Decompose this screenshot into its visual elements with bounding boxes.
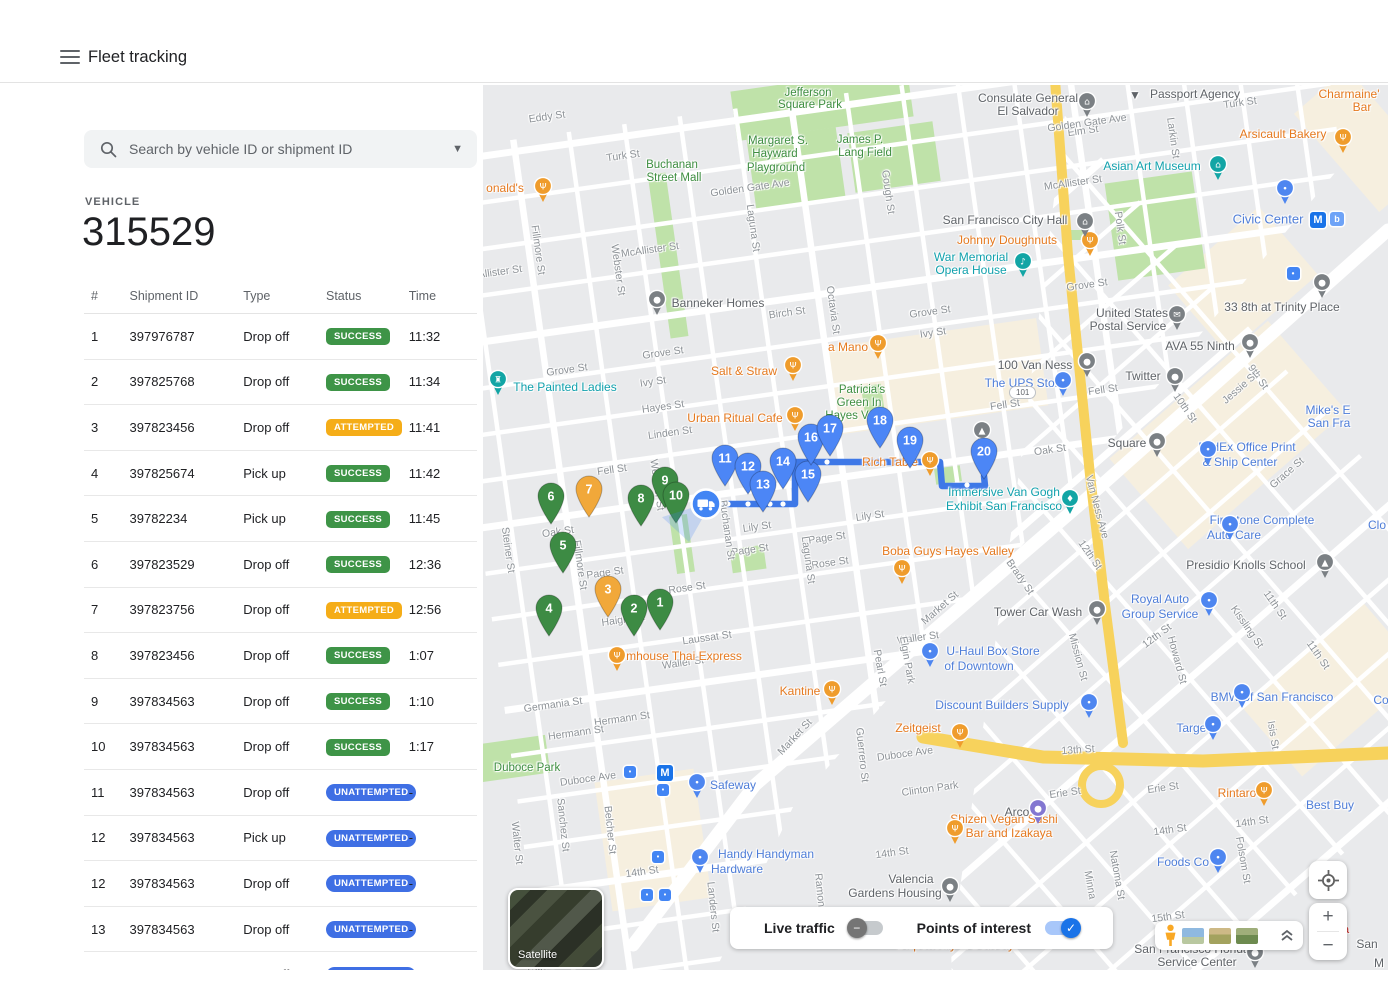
pegman-icon[interactable]	[1164, 924, 1177, 947]
status-badge: UNATTEMPTED	[326, 784, 416, 801]
van-gogh-pin[interactable]: ♦	[1060, 488, 1080, 520]
cell: 11	[84, 769, 130, 815]
status-badge: SUCCESS	[326, 556, 390, 573]
table-row[interactable]: 7397823756Drop offATTEMPTED12:56	[84, 587, 477, 633]
svg-text:•: •	[1206, 596, 1211, 606]
map-label: San Fra	[1308, 416, 1351, 430]
svg-text:•: •	[1227, 520, 1232, 530]
tower-car-wash-pin[interactable]: ●	[1087, 599, 1107, 631]
svg-text:17: 17	[823, 422, 837, 436]
fedex-pin[interactable]: •	[1198, 439, 1218, 471]
svg-text:2: 2	[631, 602, 638, 616]
svg-text:Ψ: Ψ	[791, 411, 798, 421]
svg-text:3: 3	[605, 583, 612, 597]
cell: Pick up	[243, 450, 326, 496]
table-row[interactable]: 11397834563Drop offUNATTEMPTED-	[84, 769, 477, 815]
map-label: Hayward	[752, 148, 797, 160]
map-label: AVA 55 Ninth	[1165, 339, 1235, 353]
map-label: Boba Guys Hayes Valley	[882, 544, 1014, 558]
table-row[interactable]: 13397834563Drop offUNATTEMPTED-	[84, 906, 477, 952]
arco-pin[interactable]: ●	[1028, 798, 1048, 830]
column-header: Shipment ID	[130, 283, 244, 314]
cell: -	[409, 952, 477, 970]
cell: 397834563	[130, 861, 244, 907]
cell: 11:42	[409, 450, 477, 496]
handy-handyman-pin[interactable]: •	[690, 847, 710, 879]
map-label: Postal Service	[1090, 319, 1167, 333]
table-row[interactable]: 2397825768Drop offSUCCESS11:34	[84, 359, 477, 405]
status-cell: SUCCESS	[326, 496, 409, 542]
svg-text:Ψ: Ψ	[828, 685, 835, 695]
metro-m-icon[interactable]: M	[657, 765, 673, 781]
map-label: San Francisco City Hall	[943, 213, 1068, 227]
cell: Drop off	[243, 359, 326, 405]
cell: 12:36	[409, 541, 477, 587]
search-box[interactable]: ▼	[84, 130, 477, 168]
transit-icon[interactable]: •	[659, 889, 671, 901]
svg-text:●: ●	[1153, 437, 1161, 447]
table-row[interactable]: 4397825674Pick upSUCCESS11:42	[84, 450, 477, 496]
table-row[interactable]: 14397834563Drop offUNATTEMPTED-	[84, 952, 477, 970]
map-label: M	[1374, 956, 1384, 970]
map-label: Foods Co	[1157, 855, 1209, 869]
map-label: Handy Handyman	[718, 847, 814, 861]
fleet-tracking-app: Fleet tracking ▼ VEHICLE 315529 #Shipmen…	[0, 0, 1388, 1006]
svg-text:●: ●	[1093, 605, 1101, 615]
cell: 39782234	[130, 496, 244, 542]
cell: 10	[84, 724, 130, 770]
page-title: Fleet tracking	[88, 48, 187, 67]
map-label: Arco	[1005, 805, 1030, 819]
map-label: Banneker Homes	[672, 296, 765, 310]
table-row[interactable]: 12397834563Pick upUNATTEMPTED-	[84, 815, 477, 861]
satellite-toggle[interactable]: Satellite	[508, 888, 604, 969]
stop-pin-3[interactable]: 3	[593, 575, 623, 624]
map-label: Hardware	[711, 862, 763, 876]
svg-text:●: ●	[1034, 804, 1042, 814]
transit-icon[interactable]: •	[657, 784, 669, 796]
map-label: Passport Agency	[1150, 87, 1240, 101]
svg-text:Ψ: Ψ	[956, 728, 963, 738]
zoom-in-button[interactable]: +	[1309, 903, 1347, 931]
map-label: Exhibit San Francisco	[946, 499, 1062, 513]
map-label: Charmaine'	[1319, 87, 1380, 101]
imagery-thumbnail[interactable]	[1209, 928, 1231, 944]
table-row[interactable]: 6397823529Drop offSUCCESS12:36	[84, 541, 477, 587]
map-label: The Painted Ladies	[513, 380, 616, 394]
uhaul-pin[interactable]: •	[920, 641, 940, 673]
svg-text:19: 19	[903, 434, 917, 448]
toggle-knob-minus-icon: −	[847, 918, 867, 938]
cell: 11:41	[409, 405, 477, 451]
status-badge: UNATTEMPTED	[326, 967, 416, 970]
cell: 13	[84, 906, 130, 952]
square-pin[interactable]: ●	[1147, 431, 1167, 463]
svg-text:Ψ: Ψ	[874, 339, 881, 349]
svg-text:▲: ▲	[979, 426, 986, 436]
transit-icon[interactable]: •	[624, 766, 636, 778]
map-label: Patricia's	[839, 384, 885, 396]
header-divider	[0, 82, 1388, 83]
opera-house-pin[interactable]: ♪	[1013, 251, 1033, 283]
table-row[interactable]: 1397976787Drop offSUCCESS11:32	[84, 314, 477, 360]
map-label: War Memorial	[934, 250, 1008, 264]
map-label: James P.	[837, 134, 883, 146]
cell: Drop off	[243, 952, 326, 970]
cell: 12	[84, 861, 130, 907]
table-row[interactable]: 10397834563Drop offSUCCESS1:17	[84, 724, 477, 770]
column-header: Status	[326, 283, 409, 314]
map-label: Jefferson	[784, 87, 831, 99]
map-label: Safeway	[710, 778, 756, 792]
map-label: Valencia	[888, 872, 933, 886]
cell: Drop off	[243, 906, 326, 952]
svg-text:Ψ: Ψ	[1339, 133, 1346, 143]
svg-text:⌂: ⌂	[1215, 160, 1221, 170]
live-traffic-toggle[interactable]: −	[849, 921, 883, 935]
map-label: Duboce Park	[494, 762, 560, 774]
cell: 397834563	[130, 678, 244, 724]
column-header: Type	[243, 283, 326, 314]
table-row[interactable]: 3397823456Drop offATTEMPTED11:41	[84, 405, 477, 451]
status-cell: SUCCESS	[326, 359, 409, 405]
status-badge: SUCCESS	[326, 693, 390, 710]
cell: 397825768	[130, 359, 244, 405]
map-label: Playground	[747, 162, 805, 174]
svg-text:Ψ: Ψ	[951, 824, 958, 834]
cell: 5	[84, 496, 130, 542]
live-traffic-label: Live traffic	[764, 920, 835, 936]
svg-text:•: •	[1210, 720, 1215, 730]
status-cell: SUCCESS	[326, 541, 409, 587]
status-cell: UNATTEMPTED	[326, 861, 409, 907]
status-badge: ATTEMPTED	[326, 602, 402, 619]
foods-co-pin[interactable]: •	[1208, 847, 1228, 879]
zoom-out-button[interactable]: −	[1309, 932, 1347, 960]
status-badge: UNATTEMPTED	[326, 875, 416, 892]
map-label: Service Center	[1157, 955, 1236, 969]
twitter-pin[interactable]: ●	[1165, 366, 1185, 398]
map-label: Lang Field	[838, 147, 892, 159]
svg-text:•: •	[1205, 445, 1210, 455]
svg-text:•: •	[1060, 376, 1065, 386]
status-cell: SUCCESS	[326, 678, 409, 724]
map-label: Twitter	[1125, 369, 1160, 383]
ups-store-pin[interactable]: •	[1053, 370, 1073, 402]
svg-text:Ψ: Ψ	[789, 361, 796, 371]
cell: 397834563	[130, 769, 244, 815]
table-header-row: #Shipment IDTypeStatusTime	[84, 283, 477, 314]
app-header: Fleet tracking	[0, 0, 1388, 82]
royal-auto-pin[interactable]: •	[1199, 590, 1219, 622]
shipment-table: #Shipment IDTypeStatusTime 1397976787Dro…	[84, 283, 477, 970]
stop-pin-4[interactable]: 4	[534, 594, 564, 643]
status-cell: UNATTEMPTED	[326, 769, 409, 815]
stop-pin-20[interactable]: 20	[969, 437, 999, 486]
painted-ladies-pin[interactable]: ♜	[488, 369, 508, 401]
map-label: San	[1356, 937, 1377, 951]
column-header: #	[84, 283, 130, 314]
target-pin[interactable]: •	[1203, 714, 1223, 746]
valencia-gardens-pin[interactable]: ●	[940, 876, 960, 908]
farmhouse-pin[interactable]: Ψ	[607, 645, 627, 677]
status-cell: UNATTEMPTED	[326, 906, 409, 952]
map-label: Zeitgeist	[895, 721, 940, 735]
svg-text:14: 14	[776, 455, 790, 469]
svg-text:⌂: ⌂	[1082, 217, 1088, 227]
cell: 397823756	[130, 587, 244, 633]
svg-text:7: 7	[586, 483, 593, 497]
cell: 397825674	[130, 450, 244, 496]
cell: 4	[84, 450, 130, 496]
status-cell: UNATTEMPTED	[326, 815, 409, 861]
map-label: of Downtown	[944, 659, 1013, 673]
cell: 7	[84, 587, 130, 633]
toggle-knob-check-icon: ✓	[1061, 918, 1081, 938]
svg-text:10: 10	[669, 489, 683, 503]
100-van-ness-pin[interactable]: ●	[1077, 351, 1097, 383]
map-label: Asian Art Museum	[1103, 159, 1200, 173]
cell: -	[409, 861, 477, 907]
cell: -	[409, 815, 477, 861]
map-label: Gardens Housing	[848, 886, 941, 900]
cell: 12:56	[409, 587, 477, 633]
map-label: Discount Builders Supply	[935, 698, 1068, 712]
vehicle-label: VEHICLE	[85, 196, 140, 208]
cell: 11:32	[409, 314, 477, 360]
cell: 11:45	[409, 496, 477, 542]
stop-pin-19[interactable]: 19	[895, 426, 925, 475]
consulate-pin[interactable]: ⌂	[1077, 91, 1097, 123]
asian-art-museum-pin[interactable]: ⌂	[1208, 154, 1228, 186]
shizen-pin[interactable]: Ψ	[945, 818, 965, 850]
table-row[interactable]: 9397834563Drop offSUCCESS1:10	[84, 678, 477, 724]
my-location-icon	[1318, 870, 1339, 891]
map-label: Presidio Knolls School	[1186, 558, 1305, 572]
vehicle-location-marker[interactable]	[689, 487, 723, 526]
svg-text:•: •	[1239, 688, 1244, 698]
my-location-button[interactable]	[1309, 861, 1347, 899]
cell: 1:10	[409, 678, 477, 724]
map-label: ▼	[1129, 88, 1141, 102]
civic-center-bart-icon[interactable]: b	[1330, 212, 1344, 226]
highway-101-shield: 101	[1009, 386, 1036, 399]
search-dropdown-caret-icon[interactable]: ▼	[452, 143, 463, 155]
svg-text:8: 8	[638, 492, 645, 506]
status-badge: UNATTEMPTED	[326, 921, 416, 938]
discount-builders-pin[interactable]: •	[1079, 692, 1099, 724]
svg-text:•: •	[1086, 698, 1091, 708]
svg-text:●: ●	[1171, 372, 1179, 382]
vehicle-id: 315529	[82, 210, 215, 255]
svg-text:•: •	[927, 647, 932, 657]
svg-text:6: 6	[548, 490, 555, 504]
a-mano-pin[interactable]: Ψ	[868, 333, 888, 365]
cell: Pick up	[243, 496, 326, 542]
cell: 397834563	[130, 815, 244, 861]
arsicault-pin[interactable]: Ψ	[1333, 127, 1353, 159]
menu-icon[interactable]	[60, 50, 80, 64]
map-label: Consulate General	[978, 91, 1078, 105]
map-label: Johnny Doughnuts	[957, 233, 1057, 247]
salt-straw-pin[interactable]: Ψ	[783, 355, 803, 387]
svg-text:●: ●	[946, 882, 954, 892]
svg-text:♦: ♦	[1066, 494, 1074, 504]
rintaro-pin[interactable]: Ψ	[1254, 780, 1274, 812]
map-label: Street Mall	[647, 172, 702, 184]
bmw-pin[interactable]: •	[1232, 682, 1252, 714]
usps-pin[interactable]: ✉	[1167, 304, 1187, 336]
stop-pin-5[interactable]: 5	[548, 531, 578, 580]
transit-icon[interactable]: •	[641, 889, 653, 901]
search-input[interactable]	[127, 140, 452, 158]
cell: Pick up	[243, 815, 326, 861]
satellite-label: Satellite	[518, 949, 557, 961]
shipment-table-body: 1397976787Drop offSUCCESS11:322397825768…	[84, 314, 477, 971]
svg-text:Ψ: Ψ	[613, 651, 620, 661]
map-label: Margaret S.	[748, 135, 808, 147]
map-label: 13th St	[1061, 743, 1095, 757]
status-cell: ATTEMPTED	[326, 405, 409, 451]
svg-text:•: •	[697, 853, 702, 863]
map-label: Urban Ritual Cafe	[687, 411, 782, 425]
cell: 397834563	[130, 724, 244, 770]
status-cell: SUCCESS	[326, 724, 409, 770]
status-badge: SUCCESS	[326, 328, 390, 345]
svg-text:●: ●	[1083, 357, 1091, 367]
safeway-pin[interactable]: •	[687, 772, 707, 804]
status-badge: UNATTEMPTED	[326, 830, 416, 847]
status-badge: SUCCESS	[326, 739, 390, 756]
map-label: a Mano	[828, 340, 868, 354]
status-cell: UNATTEMPTED	[326, 952, 409, 970]
mcdonalds-pin[interactable]: Ψ	[533, 176, 553, 208]
zeitgeist-pin[interactable]: Ψ	[950, 722, 970, 754]
svg-text:11: 11	[718, 452, 731, 466]
map-label: Rintaro	[1218, 786, 1257, 800]
transit-icon[interactable]: •	[1287, 267, 1300, 280]
cell: Drop off	[243, 405, 326, 451]
svg-text:♪: ♪	[1020, 257, 1026, 267]
map-label: Mike's E	[1306, 403, 1351, 417]
map-label: Farmhouse Thai Express	[608, 649, 742, 663]
map-label: El Salvador	[997, 104, 1058, 118]
cell: Drop off	[243, 314, 326, 360]
table-row[interactable]: 12397834563Drop offUNATTEMPTED-	[84, 861, 477, 907]
map-label: Co	[1373, 693, 1388, 707]
status-badge: SUCCESS	[326, 374, 390, 391]
svg-text:4: 4	[546, 602, 553, 616]
stop-pin-17[interactable]: 17	[815, 414, 845, 463]
stop-pin-6[interactable]: 6	[536, 482, 566, 531]
firestone-pin[interactable]: •	[1220, 514, 1240, 546]
svg-text:Ψ: Ψ	[1260, 786, 1267, 796]
svg-text:Ψ: Ψ	[539, 182, 546, 192]
cell: 6	[84, 541, 130, 587]
map-label: United States	[1096, 306, 1168, 320]
points-of-interest-label: Points of interest	[917, 920, 1031, 936]
cell: 2	[84, 359, 130, 405]
stop-pin-18[interactable]: 18	[865, 406, 895, 455]
civic-center-muni-icon[interactable]: M	[1310, 212, 1326, 228]
cell: 3	[84, 405, 130, 451]
cell: Drop off	[243, 587, 326, 633]
boba-guys-pin[interactable]: Ψ	[892, 558, 912, 590]
imagery-thumbnail[interactable]	[1182, 928, 1204, 944]
points-of-interest-toggle[interactable]: ✓	[1045, 921, 1079, 935]
map-label: U-Haul Box Store	[946, 644, 1039, 658]
cell: Drop off	[243, 769, 326, 815]
map-label: Arsicault Bakery	[1240, 127, 1327, 141]
table-row[interactable]: 8397823456Drop offSUCCESS1:07	[84, 633, 477, 679]
cell: 12	[84, 815, 130, 861]
map-label: Square	[1108, 436, 1147, 450]
stop-pin-2[interactable]: 2	[619, 594, 649, 643]
pegman-bar	[1155, 921, 1303, 950]
cell: 397834563	[130, 952, 244, 970]
stop-pin-1[interactable]: 1	[645, 588, 675, 637]
shopping-pin[interactable]: •	[1275, 178, 1295, 210]
svg-text:20: 20	[977, 445, 991, 459]
cell: Drop off	[243, 541, 326, 587]
cell: Drop off	[243, 678, 326, 724]
svg-text:▲: ▲	[1322, 558, 1329, 568]
svg-text:♜: ♜	[494, 375, 502, 385]
transit-icon[interactable]: •	[652, 851, 664, 863]
cell: Drop off	[243, 724, 326, 770]
status-cell: ATTEMPTED	[326, 587, 409, 633]
map-label: Clo	[1368, 518, 1386, 532]
ava-55-pin[interactable]: ●	[1240, 332, 1260, 364]
map-label: onald's	[486, 181, 524, 195]
map-toggle-bar: Live traffic − Points of interest ✓	[730, 907, 1113, 949]
cell: 397976787	[130, 314, 244, 360]
cell: 397823529	[130, 541, 244, 587]
table-row[interactable]: 539782234Pick upSUCCESS11:45	[84, 496, 477, 542]
status-cell: SUCCESS	[326, 450, 409, 496]
cell: 14	[84, 952, 130, 970]
cell: 8	[84, 633, 130, 679]
status-cell: SUCCESS	[326, 314, 409, 360]
svg-text:1: 1	[657, 596, 664, 610]
cell: -	[409, 906, 477, 952]
trinity-place-pin[interactable]: ●	[1312, 272, 1332, 304]
map-label: Salt & Straw	[711, 364, 777, 378]
svg-text:•: •	[1282, 184, 1287, 194]
map-panel[interactable]: Eddy StTurk StTurk StElm StGolden Gate A…	[483, 85, 1388, 970]
status-badge: ATTEMPTED	[326, 419, 402, 436]
banneker-pin[interactable]: ●	[647, 289, 667, 321]
kantine-pin[interactable]: Ψ	[822, 679, 842, 711]
imagery-thumbnail[interactable]	[1236, 928, 1258, 944]
zoom-controls: + −	[1309, 903, 1347, 960]
presidio-knolls-pin[interactable]: ▲	[1315, 552, 1335, 584]
collapse-chevrons-icon[interactable]	[1280, 929, 1294, 942]
map-label: Group Service	[1122, 607, 1199, 621]
map-label: Kantine	[780, 684, 821, 698]
map-label: Royal Auto	[1131, 592, 1189, 606]
cell: 1	[84, 314, 130, 360]
map-label: Tower Car Wash	[994, 605, 1082, 619]
map-label: Immersive Van Gogh	[948, 485, 1060, 499]
map-label: Bar	[1353, 100, 1372, 114]
stop-pin-7[interactable]: 7	[574, 475, 604, 524]
city-hall-pin[interactable]: ⌂	[1075, 211, 1095, 243]
map-label: BMW of San Francisco	[1211, 690, 1334, 704]
svg-text:●: ●	[653, 295, 661, 305]
svg-text:•: •	[1215, 853, 1220, 863]
column-header: Time	[409, 283, 477, 314]
